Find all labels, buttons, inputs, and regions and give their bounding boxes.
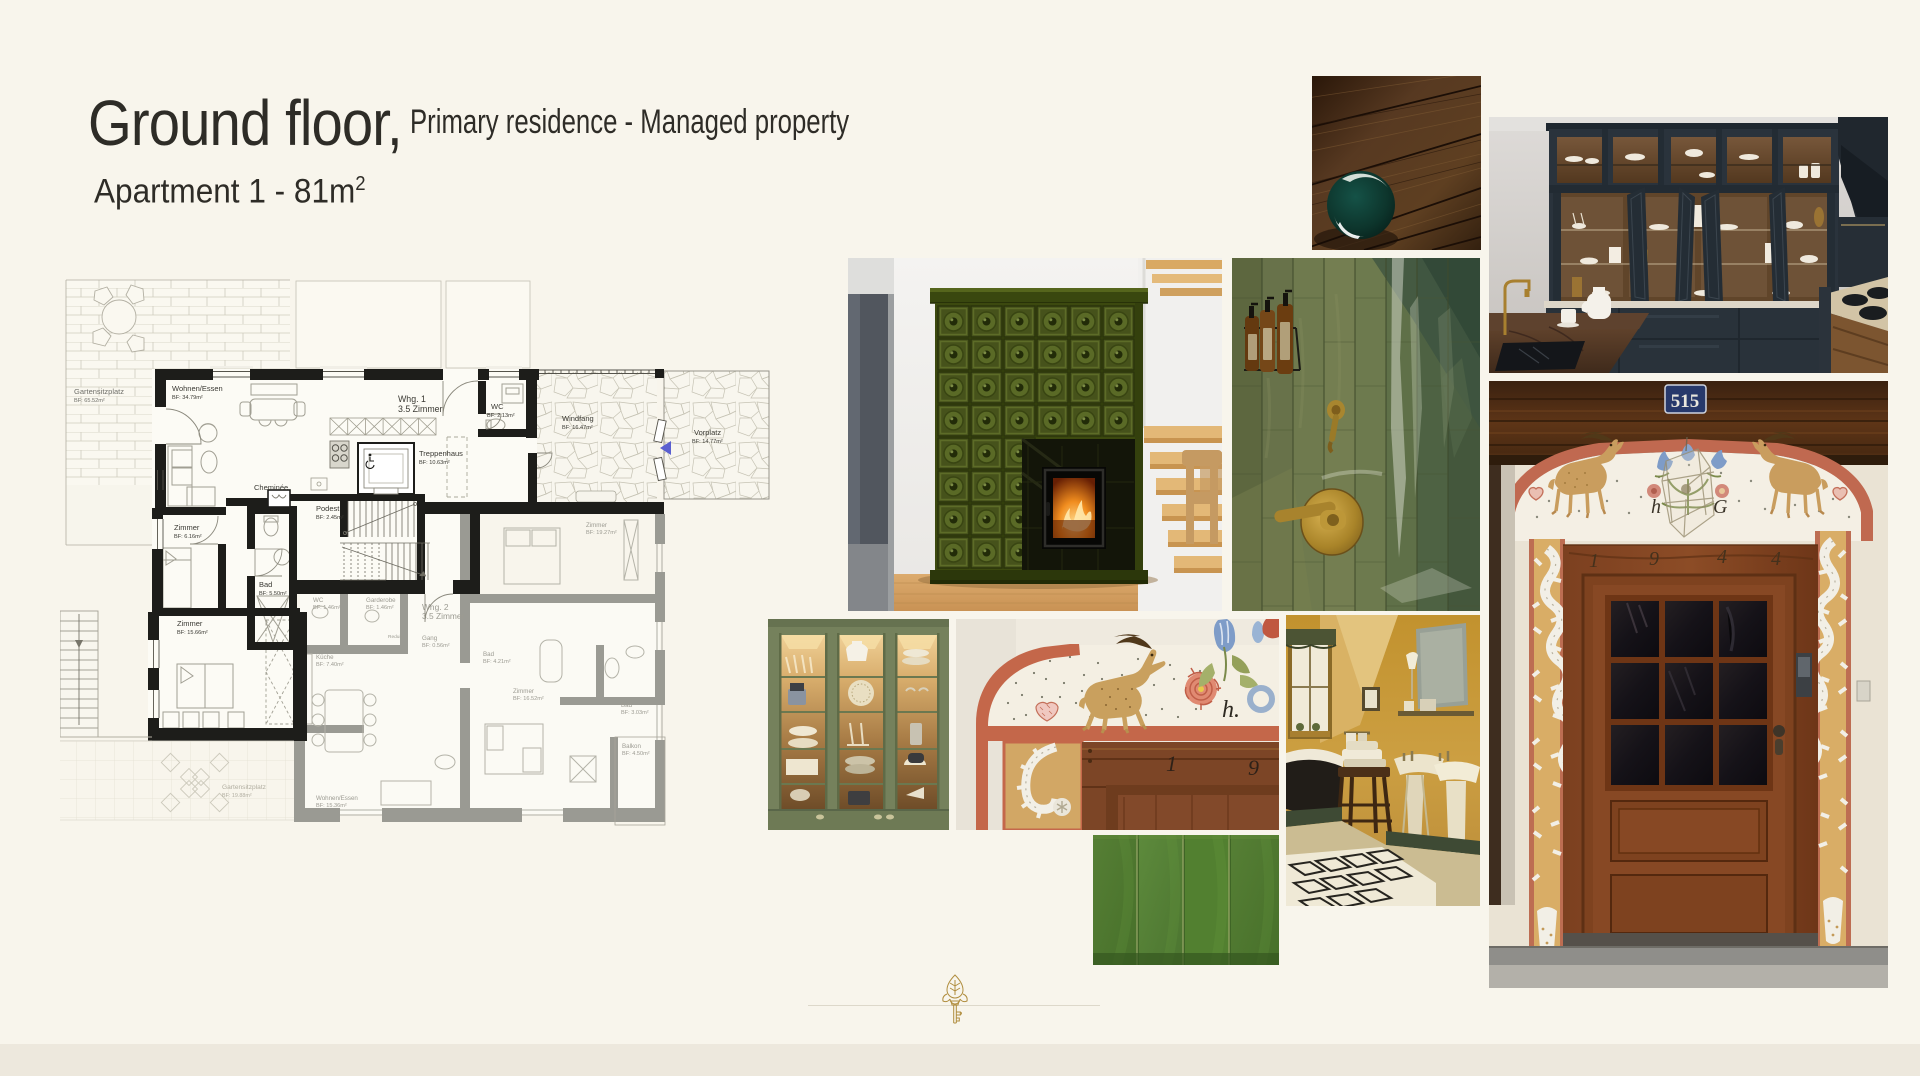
svg-text:BF: 4.21m²: BF: 4.21m² [483,659,511,665]
svg-text:Bad: Bad [483,651,495,658]
svg-text:BF: 15.36m²: BF: 15.36m² [316,803,347,809]
svg-text:Wohnen/Essen: Wohnen/Essen [316,795,358,802]
svg-text:9: 9 [1248,755,1259,780]
svg-text:Vorplatz: Vorplatz [694,428,721,437]
svg-text:BF: 19.27m²: BF: 19.27m² [586,530,617,536]
svg-text:Bad: Bad [259,580,272,589]
svg-text:BF: 2.13m²: BF: 2.13m² [487,413,515,419]
svg-text:515: 515 [1671,391,1700,412]
svg-text:Bad: Bad [621,702,633,709]
svg-text:BF: 2.45m²: BF: 2.45m² [316,515,344,521]
svg-text:Balkon: Balkon [622,743,641,750]
svg-text:BF: 34.79m²: BF: 34.79m² [172,395,203,401]
svg-text:BF: 4.50m²: BF: 4.50m² [622,751,650,757]
svg-text:Whg. 1: Whg. 1 [398,394,426,404]
svg-text:G: G [1713,496,1728,518]
svg-text:BF: 5.50m²: BF: 5.50m² [259,591,287,597]
svg-text:BF: 0.56m²: BF: 0.56m² [422,643,450,649]
svg-text:9: 9 [1649,548,1659,570]
svg-text:BF: 1.46m²: BF: 1.46m² [366,605,394,611]
svg-text:Zimmer: Zimmer [586,522,607,529]
svg-text:BF: 16.47m²: BF: 16.47m² [562,425,593,431]
svg-text:Windfang: Windfang [562,414,594,423]
svg-text:Zimmer: Zimmer [174,523,200,532]
svg-text:h.: h. [1222,697,1240,723]
svg-text:BF: 19.88m²: BF: 19.88m² [222,793,252,799]
svg-text:BF: 6.16m²: BF: 6.16m² [174,534,202,540]
svg-text:4: 4 [1717,546,1727,568]
svg-text:Cheminée: Cheminée [254,483,288,492]
svg-text:1: 1 [1589,550,1599,572]
svg-text:BF: 15.66m²: BF: 15.66m² [177,630,208,636]
svg-text:Treppenhaus: Treppenhaus [419,449,463,458]
svg-text:BF: 7.40m²: BF: 7.40m² [316,662,344,668]
svg-text:4: 4 [1771,548,1781,570]
svg-text:Podest: Podest [316,504,340,513]
svg-text:Wohnen/Essen: Wohnen/Essen [172,384,223,393]
svg-text:WC: WC [313,597,324,604]
svg-text:BF: 65.52m²: BF: 65.52m² [74,398,105,404]
svg-text:Gartensitzplatz: Gartensitzplatz [222,784,266,791]
svg-text:Küche: Küche [316,654,334,661]
svg-text:BF: 16.52m²: BF: 16.52m² [513,696,544,702]
svg-text:WC: WC [491,402,504,411]
svg-text:1: 1 [1166,751,1177,776]
svg-text:Zimmer: Zimmer [513,688,534,695]
svg-text:Gartensitzplatz: Gartensitzplatz [74,387,124,396]
svg-text:3.5 Zimmer: 3.5 Zimmer [398,404,443,414]
svg-text:h: h [1651,496,1661,518]
svg-text:BF: 3.03m²: BF: 3.03m² [621,710,649,716]
svg-text:BF: 1.46m²: BF: 1.46m² [313,605,341,611]
svg-text:Zimmer: Zimmer [177,619,203,628]
svg-text:Gang: Gang [422,635,438,642]
svg-text:Garderobe: Garderobe [366,597,396,604]
svg-text:3.5 Zimmer: 3.5 Zimmer [422,611,465,621]
svg-text:BF: 10.63m²: BF: 10.63m² [419,460,450,466]
svg-text:BF: 14.77m²: BF: 14.77m² [692,439,723,445]
svg-text:Reduit: Reduit [388,634,403,640]
